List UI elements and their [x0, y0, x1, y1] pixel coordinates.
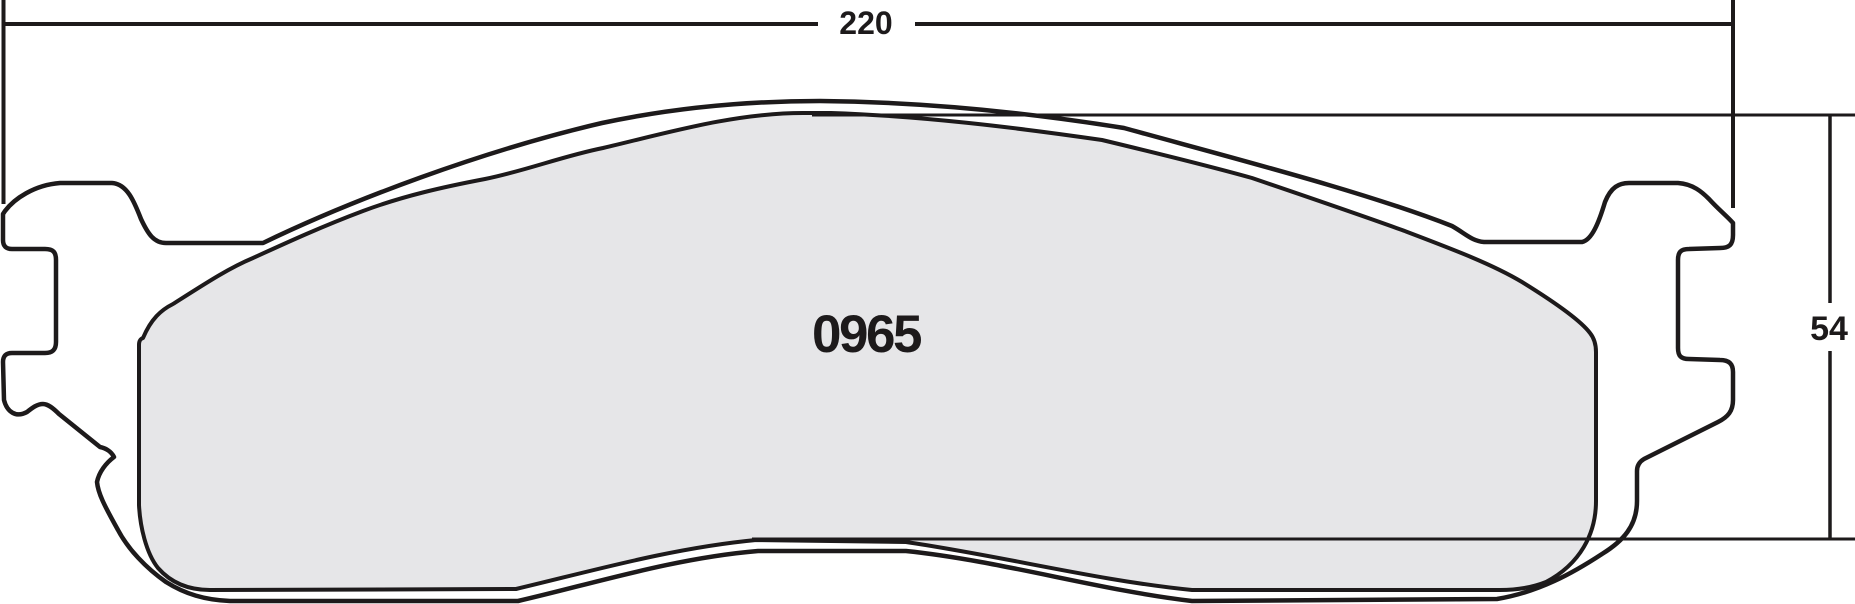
height-dimension-label: 54 [1810, 310, 1848, 348]
width-dimension-label: 220 [839, 5, 892, 41]
brake-pad-drawing: 220 54 0965 [0, 0, 1855, 604]
technical-drawing-canvas: 220 54 0965 [0, 0, 1855, 604]
part-number-label: 0965 [812, 305, 921, 364]
